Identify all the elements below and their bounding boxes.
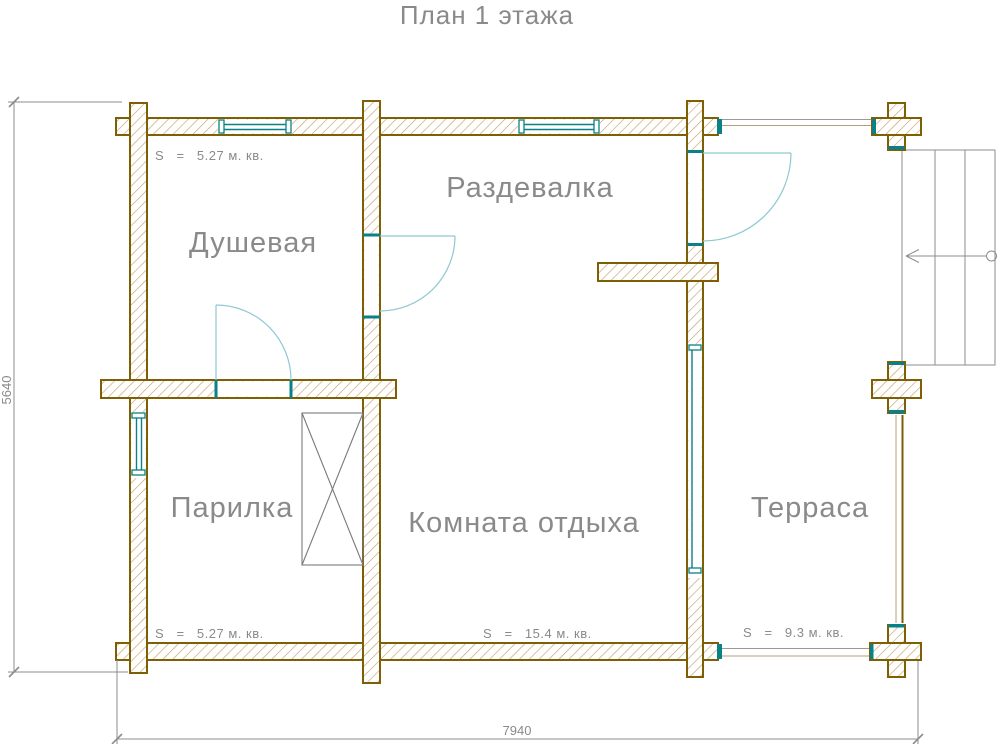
area-label-terrace: S = 9.3 м. кв. <box>743 625 844 640</box>
post-top-horizontal <box>872 118 921 135</box>
window-opening <box>131 412 145 478</box>
rail-mark <box>872 119 876 134</box>
rail-mark <box>889 410 905 414</box>
window-opening <box>518 120 600 134</box>
door-shower-steam <box>215 305 293 398</box>
room-label-lounge: Комната отдыха <box>408 507 640 539</box>
door-jamb <box>363 316 380 319</box>
rail-mark <box>889 362 905 365</box>
area-label-lounge: S = 15.4 м. кв. <box>483 626 592 641</box>
door-swing-arc <box>216 305 291 380</box>
wall-exterior-bottom <box>116 643 718 660</box>
walls <box>101 101 718 683</box>
window-jamb <box>689 345 701 350</box>
wall-stub-dressing <box>598 263 718 281</box>
window-lounge-terrace <box>688 344 701 578</box>
window-jamb <box>132 470 145 475</box>
post-middle-horizontal <box>872 380 921 398</box>
window-dressing-top <box>518 120 600 134</box>
dimension-width: 7940 <box>112 660 923 744</box>
room-label-terrace: Терраса <box>751 492 869 524</box>
stairs-outline <box>902 150 995 365</box>
door-swing-arc <box>703 153 791 241</box>
door-jamb <box>687 243 703 246</box>
rail-mark <box>717 644 722 659</box>
room-label-steam: Парилка <box>171 492 294 524</box>
door-jamb <box>215 380 218 398</box>
window-opening <box>688 344 701 578</box>
door-jamb <box>290 380 293 398</box>
window-jamb <box>519 120 524 133</box>
post-bottom-horizontal <box>870 643 921 660</box>
door-opening <box>688 153 701 243</box>
height-dimension-value: 5640 <box>0 376 14 405</box>
door-dressing-shower <box>363 234 455 319</box>
rail-mark <box>889 146 905 150</box>
stairs-arrow-head <box>906 256 919 263</box>
window-steam-left <box>131 412 145 478</box>
door-swing-arc <box>380 236 455 311</box>
window-jamb <box>219 120 224 133</box>
wall-exterior-top <box>116 118 718 135</box>
rail-mark <box>717 119 722 134</box>
window-jamb <box>594 120 599 133</box>
area-label-steam: S = 5.27 м. кв. <box>155 626 264 641</box>
floor-plan-canvas: План 1 этажа <box>0 0 1000 744</box>
stairs <box>902 150 997 365</box>
area-label-shower: S = 5.27 м. кв. <box>155 148 264 163</box>
door-jamb <box>687 150 703 153</box>
window-jamb <box>132 413 145 418</box>
rail-mark <box>889 624 905 628</box>
room-label-dressing: Раздевалка <box>446 172 613 204</box>
page-title: План 1 этажа <box>400 0 574 30</box>
width-dimension-value: 7940 <box>503 723 532 738</box>
window-shower-top <box>218 120 292 134</box>
window-jamb <box>286 120 291 133</box>
door-opening <box>364 236 378 316</box>
floor-plan-page: План 1 этажа <box>0 0 1000 744</box>
door-opening <box>216 381 290 396</box>
room-label-shower: Душевая <box>189 227 317 259</box>
door-jamb <box>363 234 380 237</box>
terrace-rails-and-stairs <box>722 120 997 657</box>
window-jamb <box>689 568 701 573</box>
stairs-arrow-head <box>906 250 919 257</box>
rail-mark <box>870 644 874 659</box>
sauna-stove <box>302 413 363 565</box>
window-opening <box>218 120 292 134</box>
